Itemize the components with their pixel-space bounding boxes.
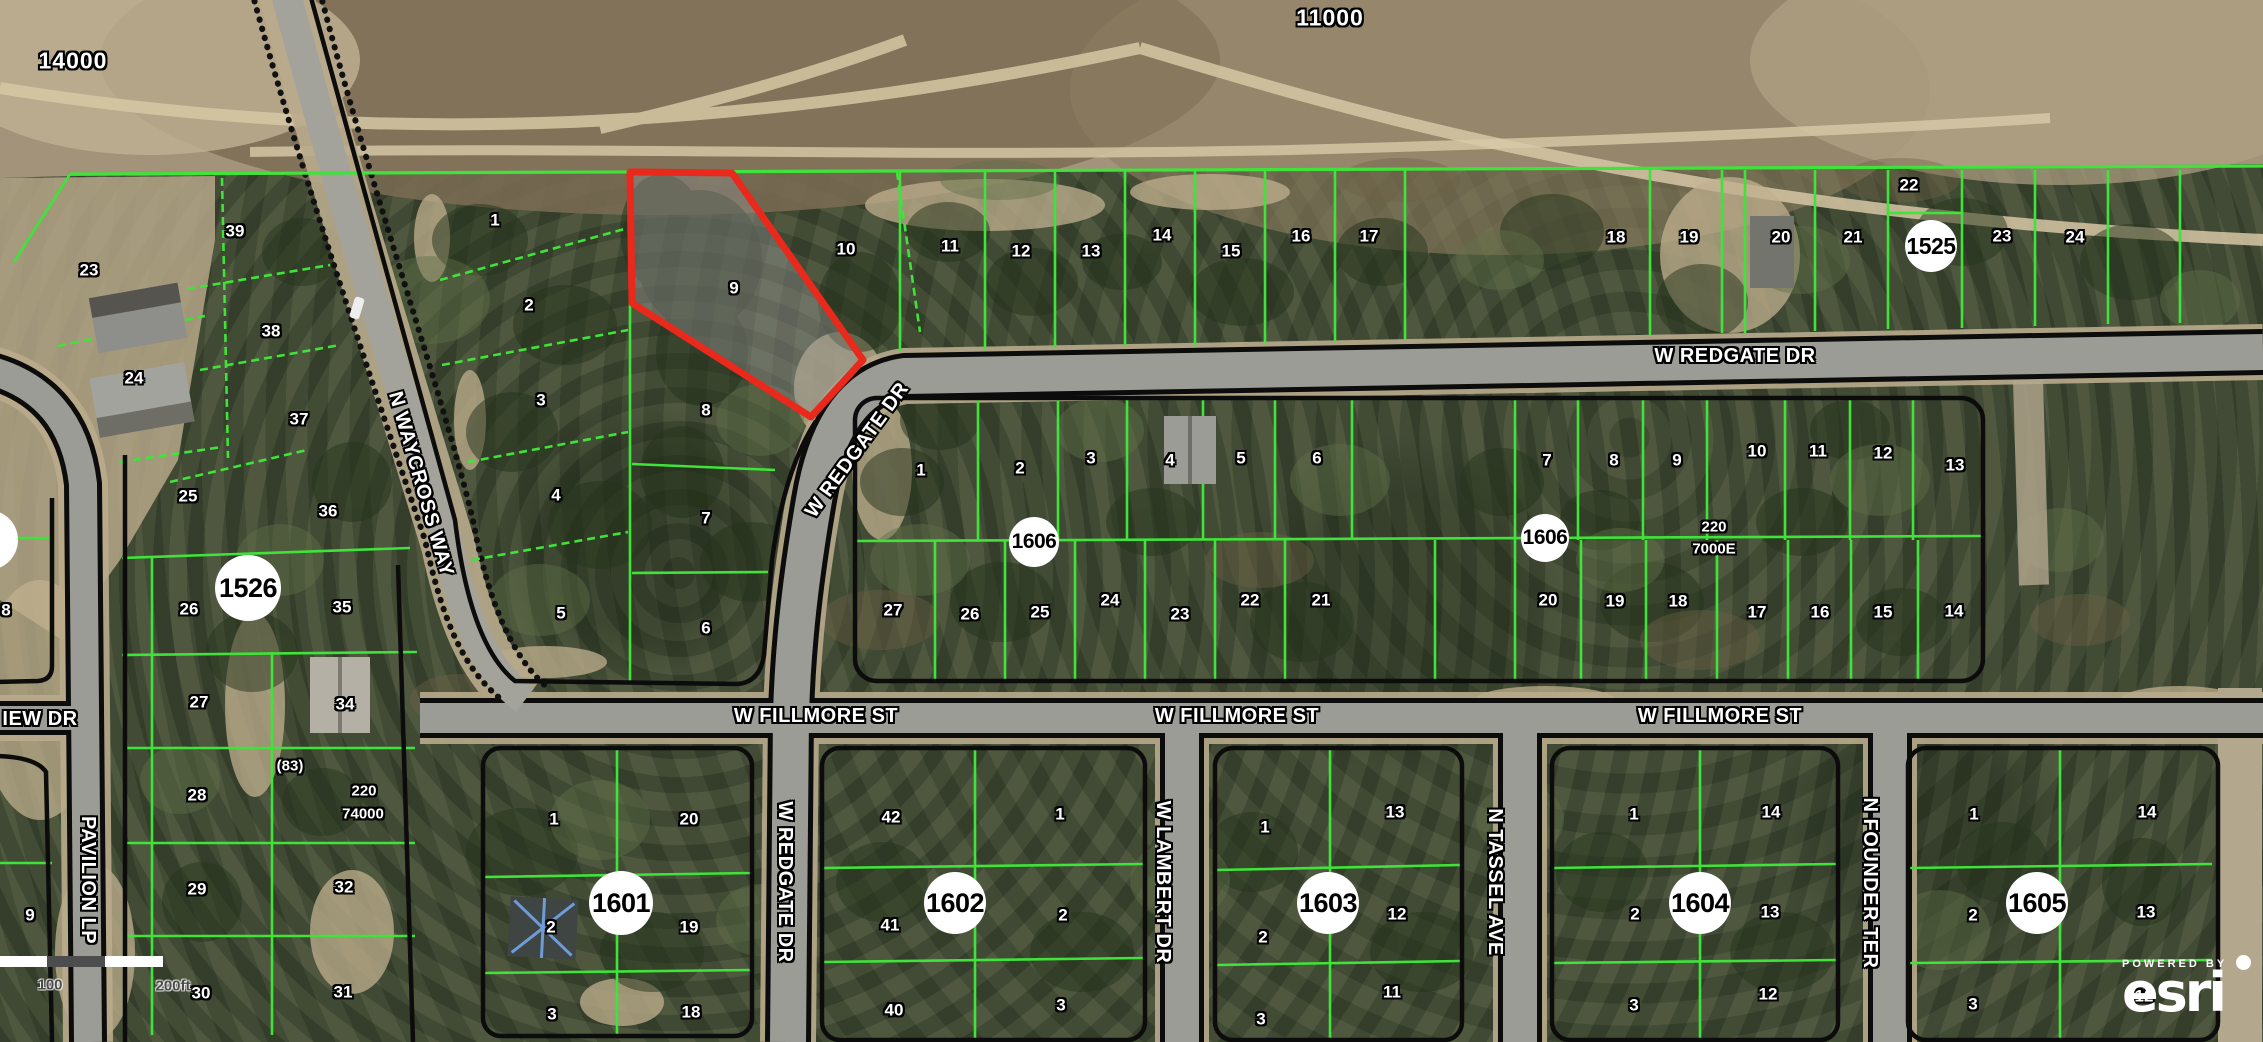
lot-number-label: 18 [1607, 229, 1626, 246]
street-name-label: W REDGATE DR [802, 379, 913, 521]
lot-number-label: 2 [1015, 460, 1024, 477]
lot-number-label: 11 [941, 238, 959, 255]
street-name-label: N WAYCROSS WAY [385, 389, 457, 578]
lot-number-label: 3 [1086, 450, 1095, 467]
lot-number-label: 41 [881, 917, 900, 934]
lot-number-label: 36 [319, 503, 338, 520]
block-number-text: 1602 [926, 888, 984, 919]
lot-number-label: 35 [333, 599, 352, 616]
lot-number-label: 21 [1844, 229, 1863, 246]
lot-number-label: 26 [180, 601, 199, 618]
block-number-badge: 1606 [1521, 514, 1569, 562]
street-name-label: W REDGATE DR [775, 801, 795, 962]
block-number-badge: 1601 [589, 871, 653, 935]
lot-number-label: 42 [882, 809, 901, 826]
lot-number-label: 5 [556, 605, 565, 622]
lot-number-label: 22 [1241, 592, 1260, 609]
lot-number-label: 1 [916, 462, 925, 479]
lot-number-label: 2 [1968, 907, 1977, 924]
scale-bar-segment [0, 956, 47, 967]
scale-bar-segment [105, 956, 163, 967]
lot-number-label: 3 [1056, 997, 1065, 1014]
lot-number-label: 8 [1, 602, 10, 619]
block-number-badge: 1602 [924, 872, 986, 934]
lot-number-label: 19 [1606, 593, 1625, 610]
lot-number-label: 4 [1165, 452, 1174, 469]
lot-number-label: 3 [547, 1006, 556, 1023]
parcel-ref-label: 220 [351, 784, 376, 799]
block-number-text: 1604 [1671, 888, 1729, 919]
lot-number-label: 5 [1236, 450, 1245, 467]
lot-number-label: 1 [1629, 806, 1638, 823]
lot-number-label: 15 [1222, 243, 1241, 260]
lot-number-label: 14 [1762, 804, 1781, 821]
lot-number-label: 7 [1542, 452, 1551, 469]
lot-number-label: 7 [701, 510, 710, 527]
lot-number-label: 19 [1680, 229, 1699, 246]
lot-number-label: 9 [1672, 452, 1681, 469]
lot-number-label: 24 [125, 370, 144, 387]
lot-number-label: 1 [1969, 806, 1978, 823]
lot-number-label: 3 [1256, 1011, 1265, 1028]
lot-number-label: 12 [1388, 906, 1407, 923]
block-number-badge: 1603 [1297, 872, 1359, 934]
lot-number-label: 18 [1669, 593, 1688, 610]
lot-number-label: 1 [490, 212, 499, 229]
street-name-label: W FILLMORE ST [1638, 706, 1802, 726]
lot-number-label: 23 [1171, 606, 1190, 623]
lot-number-label: 31 [334, 984, 353, 1001]
lot-number-label: 23 [1993, 228, 2012, 245]
lot-number-label: 2 [1058, 907, 1067, 924]
powered-by-text: POWERED BY [2122, 958, 2227, 970]
lot-number-label: 18 [682, 1004, 701, 1021]
lot-number-label: 16 [1811, 604, 1830, 621]
parcel-ref-label: 7000E [1692, 542, 1735, 557]
street-name-label: W LAMBERT DR [1153, 801, 1173, 964]
block-number-badge: 1604 [1669, 872, 1731, 934]
lot-number-label: 20 [1539, 592, 1558, 609]
lot-number-label: 13 [2137, 904, 2156, 921]
lot-number-label: 25 [1031, 604, 1050, 621]
lot-number-label: 17 [1748, 604, 1767, 621]
block-number-badge: 1606 [1009, 517, 1059, 567]
street-name-label: PAVILION LP [78, 816, 98, 944]
street-name-label: W REDGATE DR [1654, 346, 1815, 366]
lot-number-label: 9 [25, 907, 34, 924]
lot-number-label: 32 [335, 879, 354, 896]
lot-number-label: 34 [336, 696, 355, 713]
lot-number-label: 6 [701, 620, 710, 637]
lot-number-label: 16 [1292, 228, 1311, 245]
block-number-badge: 1525 [1905, 220, 1957, 272]
map-canvas[interactable]: 2324393837363534252627282930313298123456… [0, 0, 2263, 1042]
lot-number-label: 22 [1900, 177, 1919, 194]
esri-logo: esri [2122, 972, 2227, 1014]
lot-number-label: 20 [1772, 229, 1791, 246]
esri-attribution: POWERED BY esri [2122, 958, 2227, 1014]
lot-number-label: 10 [1748, 443, 1767, 460]
lot-number-label: 24 [1101, 592, 1120, 609]
area-ref-label: 14000 [39, 50, 108, 73]
lot-number-label: 6 [1312, 450, 1321, 467]
lot-number-label: 20 [680, 811, 699, 828]
block-number-text: 1601 [592, 888, 650, 919]
lot-number-label: 13 [1946, 457, 1965, 474]
lot-number-label: 29 [188, 881, 207, 898]
scale-bar-label: 100 [37, 978, 62, 993]
lot-number-label: 14 [2138, 804, 2157, 821]
lot-number-label: 17 [1360, 228, 1379, 245]
lot-number-label: 14 [1153, 227, 1172, 244]
scale-bar-label: 200ft [155, 979, 190, 994]
lot-number-label: 2 [1258, 929, 1267, 946]
street-name-label: W FILLMORE ST [1155, 706, 1319, 726]
lot-number-label: 11 [1383, 984, 1401, 1001]
lot-number-label: 27 [884, 602, 903, 619]
lot-number-label: 26 [961, 606, 980, 623]
lot-number-label: 12 [1759, 986, 1778, 1003]
block-number-text: 1605 [2008, 888, 2066, 919]
street-name-label: IEW DR [2, 709, 77, 729]
street-name-label: W FILLMORE ST [734, 706, 898, 726]
lot-number-label: 13 [1386, 804, 1405, 821]
block-number-text: 1603 [1299, 888, 1357, 919]
block-number-text: 1606 [1012, 530, 1057, 554]
street-name-label: N TASSEL AVE [1485, 808, 1505, 956]
lot-number-label: 11 [1809, 443, 1827, 460]
lot-number-label: 39 [226, 223, 245, 240]
lot-number-label: 10 [837, 241, 856, 258]
parcel-ref-label: (83) [277, 759, 304, 774]
lot-number-label: 9 [729, 280, 738, 297]
scale-bar-segment [47, 956, 105, 967]
lot-number-label: 23 [80, 262, 99, 279]
lot-number-label: 13 [1082, 243, 1101, 260]
lot-number-label: 2 [546, 919, 555, 936]
lot-number-label: 13 [1761, 904, 1780, 921]
lot-number-label: 1 [1260, 819, 1269, 836]
lot-number-label: 2 [524, 297, 533, 314]
lot-number-label: 12 [1012, 243, 1031, 260]
lot-number-label: 19 [680, 919, 699, 936]
lot-number-label: 3 [1968, 996, 1977, 1013]
block-number-badge: 1526 [215, 555, 281, 621]
lot-number-label: 8 [1609, 452, 1618, 469]
lot-number-label: 1 [549, 811, 558, 828]
lot-number-label: 27 [190, 694, 209, 711]
lot-number-label: 3 [1629, 997, 1638, 1014]
lot-number-label: 21 [1312, 592, 1331, 609]
lot-number-label: 8 [701, 402, 710, 419]
block-number-text: 1525 [1906, 233, 1955, 260]
lot-number-label: 2 [1630, 906, 1639, 923]
scale-bar [0, 956, 163, 967]
lot-number-label: 3 [536, 392, 545, 409]
map-labels-layer: 2324393837363534252627282930313298123456… [0, 0, 2263, 1042]
parcel-ref-label: 220 [1701, 520, 1726, 535]
lot-number-label: 38 [262, 323, 281, 340]
lot-number-label: 4 [551, 487, 560, 504]
lot-number-label: 24 [2066, 229, 2085, 246]
area-ref-label: 11000 [1296, 7, 1364, 30]
lot-number-label: 37 [290, 411, 309, 428]
lot-number-label: 12 [1874, 445, 1893, 462]
lot-number-label: 14 [1945, 603, 1964, 620]
lot-number-label: 28 [188, 787, 207, 804]
lot-number-label: 40 [885, 1002, 904, 1019]
block-number-badge: 1605 [2006, 872, 2068, 934]
lot-number-label: 30 [192, 985, 211, 1002]
street-name-label: N FOUNDER TER [1860, 798, 1880, 969]
block-number-text: 1606 [1523, 526, 1568, 550]
block-number-text: 1526 [219, 573, 277, 604]
parcel-ref-label: 74000 [342, 807, 384, 822]
lot-number-label: 1 [1055, 806, 1064, 823]
lot-number-label: 25 [179, 488, 198, 505]
lot-number-label: 15 [1874, 604, 1893, 621]
